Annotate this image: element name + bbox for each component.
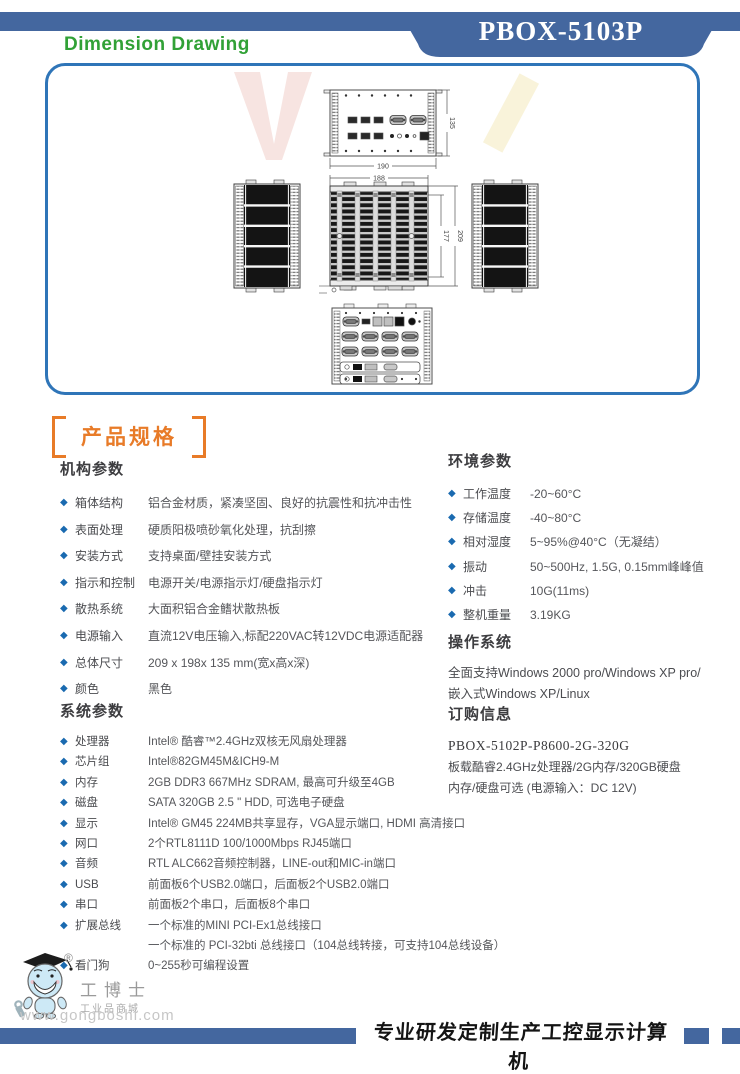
diamond-bullet-icon: ◆ [60, 596, 75, 623]
diamond-bullet-icon: ◆ [60, 773, 75, 793]
diamond-bullet-icon: ◆ [448, 482, 463, 506]
spec-value: 电源开关/电源指示灯/硬盘指示灯 [148, 570, 460, 597]
spec-label: 内存 [75, 773, 148, 793]
spec-label: 颜色 [75, 676, 148, 703]
diamond-bullet-icon: ◆ [448, 530, 463, 554]
spec-value: 直流12V电压输入,标配220VAC转12VDC电源适配器 [148, 623, 460, 650]
footer-accent-block [684, 1028, 709, 1044]
dim-177: 177 [428, 195, 449, 277]
spec-row: ◆ 显示 Intel® GM45 224MB共享显存，VGA显示端口, HDMI… [60, 814, 490, 834]
spec-label: 相对湿度 [463, 530, 530, 554]
spec-label: 磁盘 [75, 793, 148, 813]
product-spec-heading: 产品规格 [52, 416, 206, 458]
os-line: 全面支持Windows 2000 pro/Windows XP pro/ [448, 663, 736, 684]
spec-label: 冲击 [463, 579, 530, 603]
spec-value: 50~500Hz, 1.5G, 0.15mm峰峰值 [530, 555, 736, 579]
spec-row: ◆ 芯片组 Intel®82GM45M&ICH9-M [60, 752, 490, 772]
footer-slogan: 专业研发定制生产工控显示计算机 [362, 1016, 678, 1074]
spec-value: Intel® GM45 224MB共享显存，VGA显示端口, HDMI 高清接口 [148, 814, 490, 834]
spec-row: ◆ 相对湿度 5~95%@40°C（无凝结） [448, 530, 736, 554]
spec-row: ◆ 扩展总线 一个标准的MINI PCI-Ex1总线接口 一个标准的 PCI-3… [60, 916, 490, 957]
spec-row: ◆ 总体尺寸 209 x 198x 135 mm(宽x高x深) [60, 650, 460, 677]
section-title: 系统参数 [60, 700, 490, 721]
spec-value: 大面积铝合金鳍状散热板 [148, 596, 460, 623]
spec-label: USB [75, 875, 148, 895]
svg-text:209: 209 [456, 230, 463, 242]
spec-value: 一个标准的MINI PCI-Ex1总线接口 一个标准的 PCI-32bti 总线… [148, 916, 505, 957]
spec-label: 安装方式 [75, 543, 148, 570]
order-line: 内存/硬盘可选 (电源输入：DC 12V) [448, 778, 738, 799]
model-badge: PBOX-5103P [410, 16, 712, 47]
spec-label: 散热系统 [75, 596, 148, 623]
brand-url: www.gongboshi.com [20, 1007, 175, 1024]
spec-row: ◆ 内存 2GB DDR3 667MHz SDRAM, 最高可升级至4GB [60, 773, 490, 793]
spec-label: 总体尺寸 [75, 650, 148, 677]
os-line: 嵌入式Windows XP/Linux [448, 684, 736, 705]
footer-accent-block [722, 1028, 740, 1044]
spec-row: ◆ 安装方式 支持桌面/壁挂安装方式 [60, 543, 460, 570]
spec-row: ◆ 冲击 10G(11ms) [448, 579, 736, 603]
mech-rows: ◆ 箱体结构 铝合金材质，紧凑坚固、良好的抗震性和抗冲击性 ◆ 表面处理 硬质阳… [60, 490, 460, 703]
spec-value: 5~95%@40°C（无凝结） [530, 530, 736, 554]
diamond-bullet-icon: ◆ [60, 752, 75, 772]
svg-text:190: 190 [377, 164, 389, 171]
spec-label: 箱体结构 [75, 490, 148, 517]
diamond-bullet-icon: ◆ [60, 895, 75, 915]
spec-value: 前面板2个串口，后面板8个串口 [148, 895, 490, 915]
spec-value: SATA 320GB 2.5 " HDD, 可选电子硬盘 [148, 793, 490, 813]
spec-row: ◆ 存储温度 -40~80°C [448, 506, 736, 530]
bracket-left [52, 416, 66, 458]
diamond-bullet-icon: ◆ [60, 543, 75, 570]
spec-label: 存储温度 [463, 506, 530, 530]
spec-label: 指示和控制 [75, 570, 148, 597]
dimension-drawing: 190 135 188 [48, 66, 697, 386]
spec-row: ◆ 电源输入 直流12V电压输入,标配220VAC转12VDC电源适配器 [60, 623, 460, 650]
spec-row: ◆ 工作温度 -20~60°C [448, 482, 736, 506]
svg-text:135: 135 [448, 117, 455, 129]
spec-value: 2GB DDR3 667MHz SDRAM, 最高可升级至4GB [148, 773, 490, 793]
spec-value: 3.19KG [530, 603, 736, 627]
spec-value: 硬质阳极喷砂氧化处理，抗刮擦 [148, 517, 460, 544]
diamond-bullet-icon: ◆ [448, 579, 463, 603]
spec-value: RTL ALC662音频控制器，LINE-out和MIC-in端口 [148, 854, 490, 874]
product-spec-title: 产品规格 [66, 416, 192, 458]
spec-label: 处理器 [75, 732, 148, 752]
spec-row: ◆ 振动 50~500Hz, 1.5G, 0.15mm峰峰值 [448, 555, 736, 579]
diamond-bullet-icon: ◆ [448, 506, 463, 530]
diamond-bullet-icon: ◆ [60, 814, 75, 834]
registered-mark: ® [64, 951, 73, 965]
spec-row: ◆ 整机重量 3.19KG [448, 603, 736, 627]
top-view: 190 135 [324, 90, 455, 171]
rear-view [332, 304, 432, 384]
spec-value-line2: 一个标准的 PCI-32bti 总线接口（104总线转接，可支持104总线设备） [148, 936, 505, 956]
spec-value: 10G(11ms) [530, 579, 736, 603]
spec-row: ◆ 看门狗 0~255秒可编程设置 [60, 956, 490, 976]
section-mechanical: 机构参数 ◆ 箱体结构 铝合金材质，紧凑坚固、良好的抗震性和抗冲击性 ◆ 表面处… [60, 458, 460, 703]
spec-row: ◆ 散热系统 大面积铝合金鳍状散热板 [60, 596, 460, 623]
diamond-bullet-icon: ◆ [60, 916, 75, 936]
spec-value: 0~255秒可编程设置 [148, 956, 490, 976]
dimension-drawing-panel: 190 135 188 [45, 63, 700, 395]
diamond-bullet-icon: ◆ [60, 650, 75, 677]
spec-value: 前面板6个USB2.0端口，后面板2个USB2.0端口 [148, 875, 490, 895]
spec-value: 黑色 [148, 676, 460, 703]
spec-label: 电源输入 [75, 623, 148, 650]
spec-row: ◆ USB 前面板6个USB2.0端口，后面板2个USB2.0端口 [60, 875, 490, 895]
footer-bar [0, 1028, 356, 1044]
spec-value: 支持桌面/壁挂安装方式 [148, 543, 460, 570]
diamond-bullet-icon: ◆ [60, 875, 75, 895]
spec-row: ◆ 网口 2个RTL8111D 100/1000Mbps RJ45端口 [60, 834, 490, 854]
svg-text:188: 188 [373, 176, 385, 183]
brand-name: 工博士 [80, 976, 152, 1001]
dim-190: 190 [330, 158, 436, 171]
spec-row: ◆ 音频 RTL ALC662音频控制器，LINE-out和MIC-in端口 [60, 854, 490, 874]
diamond-bullet-icon: ◆ [60, 854, 75, 874]
section-title: 操作系统 [448, 631, 736, 652]
spec-label: 振动 [463, 555, 530, 579]
section-system: 系统参数 ◆ 处理器 Intel® 酷睿™2.4GHz双核无风扇处理器 ◆ 芯片… [60, 700, 490, 977]
diamond-bullet-icon: ◆ [60, 517, 75, 544]
os-lines: 全面支持Windows 2000 pro/Windows XP pro/ 嵌入式… [448, 663, 736, 705]
spec-row: ◆ 处理器 Intel® 酷睿™2.4GHz双核无风扇处理器 [60, 732, 490, 752]
spec-value: -20~60°C [530, 482, 736, 506]
sys-rows: ◆ 处理器 Intel® 酷睿™2.4GHz双核无风扇处理器 ◆ 芯片组 Int… [60, 732, 490, 977]
spec-label: 芯片组 [75, 752, 148, 772]
front-view: 188 [319, 175, 463, 293]
env-rows: ◆ 工作温度 -20~60°C ◆ 存储温度 -40~80°C ◆ 相对湿度 5… [448, 482, 736, 627]
spec-label: 音频 [75, 854, 148, 874]
spec-row: ◆ 箱体结构 铝合金材质，紧凑坚固、良好的抗震性和抗冲击性 [60, 490, 460, 517]
right-side-view [472, 180, 538, 292]
spec-label: 整机重量 [463, 603, 530, 627]
diamond-bullet-icon: ◆ [60, 834, 75, 854]
spec-value: -40~80°C [530, 506, 736, 530]
diamond-bullet-icon: ◆ [448, 555, 463, 579]
spec-row: ◆ 颜色 黑色 [60, 676, 460, 703]
order-lines: 板载酷睿2.4GHz处理器/2G内存/320GB硬盘 内存/硬盘可选 (电源输入… [448, 757, 738, 799]
spec-value: 2个RTL8111D 100/1000Mbps RJ45端口 [148, 834, 490, 854]
svg-text:177: 177 [442, 230, 449, 242]
spec-label: 显示 [75, 814, 148, 834]
section-title: 订购信息 [448, 703, 738, 724]
section-environment: 环境参数 ◆ 工作温度 -20~60°C ◆ 存储温度 -40~80°C ◆ 相… [448, 450, 736, 627]
dim-135: 135 [438, 90, 455, 156]
diamond-bullet-icon: ◆ [60, 490, 75, 517]
diamond-bullet-icon: ◆ [60, 793, 75, 813]
left-side-view [234, 180, 300, 292]
page-title: Dimension Drawing [64, 34, 250, 56]
section-title: 环境参数 [448, 450, 736, 471]
spec-label: 看门狗 [75, 956, 148, 976]
spec-label: 表面处理 [75, 517, 148, 544]
spec-value: 209 x 198x 135 mm(宽x高x深) [148, 650, 460, 677]
spec-label: 网口 [75, 834, 148, 854]
spec-value: 铝合金材质，紧凑坚固、良好的抗震性和抗冲击性 [148, 490, 460, 517]
diamond-bullet-icon: ◆ [60, 623, 75, 650]
spec-row: ◆ 表面处理 硬质阳极喷砂氧化处理，抗刮擦 [60, 517, 460, 544]
spec-value: Intel®82GM45M&ICH9-M [148, 752, 490, 772]
order-model-number: PBOX-5102P-P8600-2G-320G [448, 735, 738, 757]
spec-value: Intel® 酷睿™2.4GHz双核无风扇处理器 [148, 732, 490, 752]
spec-row: ◆ 串口 前面板2个串口，后面板8个串口 [60, 895, 490, 915]
bracket-right [192, 416, 206, 458]
spec-row: ◆ 指示和控制 电源开关/电源指示灯/硬盘指示灯 [60, 570, 460, 597]
diamond-bullet-icon: ◆ [448, 603, 463, 627]
section-order-info: 订购信息 PBOX-5102P-P8600-2G-320G 板载酷睿2.4GHz… [448, 703, 738, 799]
order-line: 板载酷睿2.4GHz处理器/2G内存/320GB硬盘 [448, 757, 738, 778]
diamond-bullet-icon: ◆ [60, 676, 75, 703]
diamond-bullet-icon: ◆ [60, 570, 75, 597]
spec-label: 工作温度 [463, 482, 530, 506]
spec-label: 扩展总线 [75, 916, 148, 936]
spec-row: ◆ 磁盘 SATA 320GB 2.5 " HDD, 可选电子硬盘 [60, 793, 490, 813]
section-title: 机构参数 [60, 458, 460, 479]
diamond-bullet-icon: ◆ [60, 732, 75, 752]
section-os: 操作系统 全面支持Windows 2000 pro/Windows XP pro… [448, 631, 736, 705]
spec-label: 串口 [75, 895, 148, 915]
